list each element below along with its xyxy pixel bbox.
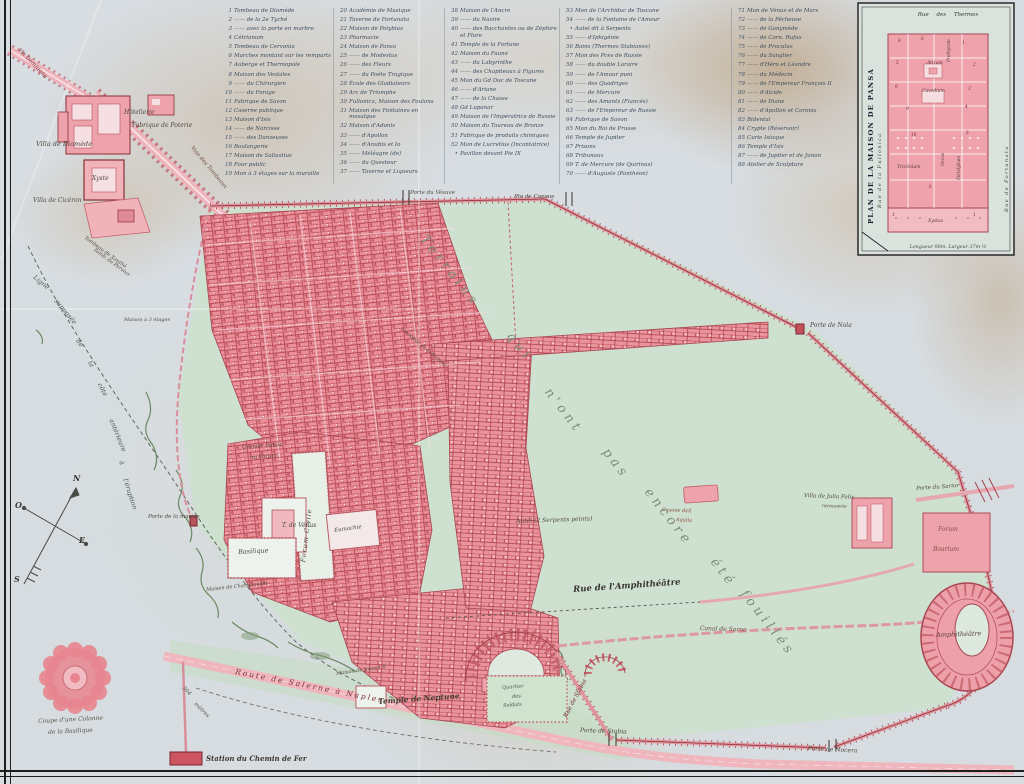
compass-west-label: O xyxy=(15,500,22,510)
legend-entry-label: —— du Navire xyxy=(460,17,561,23)
legend-entry: 29Arc de Triomphe xyxy=(338,90,446,96)
legend-entry: 24Maison de Pansa xyxy=(338,44,446,50)
legend-entry: 61—— de Mercure xyxy=(564,90,730,96)
legend-entry-number: • xyxy=(564,26,573,32)
legend-column: 71Mon de Vénus et de Mars72—— de la Pêch… xyxy=(736,8,858,171)
legend-entry: 22Maison de Polybius xyxy=(338,26,446,32)
legend-entry-number: 42 xyxy=(449,51,458,57)
legend-entry: 49Maison de l'Impératrice de Russie xyxy=(449,114,561,120)
legend-entry-label: —— d'Auguste (Panthéon) xyxy=(575,171,730,177)
legend-entry-label: Mon du Roi de Prusse xyxy=(575,126,730,132)
legend-entry: 83Bidental xyxy=(736,117,858,123)
legend-entry: 52Mon de Lucretius (Incantatrice) xyxy=(449,142,561,148)
legend-entry: 57Mon des Pces de Russie xyxy=(564,53,730,59)
legend-entry: 53Mon de l'Archiduc de Toscane xyxy=(564,8,730,14)
legend-entry: 50Maison du Taureau de Bronze xyxy=(449,123,561,129)
maison-pansa-inset xyxy=(858,3,1014,255)
legend-entry: 64Fabrique de Savon xyxy=(564,117,730,123)
map-label: Oecus xyxy=(941,153,945,166)
legend-entry-number: 43 xyxy=(449,60,458,66)
legend-entry: 20Académie de Musique xyxy=(338,8,446,14)
legend-entry-label: —— des Bacchantes ou de Zéphire et Flore xyxy=(460,26,561,39)
legend-entry-label: Boulangerie xyxy=(234,144,335,150)
legend-entry: 74—— de Corn. Rufus xyxy=(736,35,858,41)
legend-entry-label: —— du Sanglier xyxy=(747,53,858,59)
legend-entry: 14—— de Narcisse xyxy=(223,126,335,132)
legend-separator xyxy=(333,8,334,184)
legend-entry-label: Mon de Vénus et de Mars xyxy=(747,8,858,14)
legend-entry-number: 69 xyxy=(564,162,573,168)
legend-entry-number: 19 xyxy=(223,171,232,177)
map-border-bottom-inner xyxy=(0,776,1024,777)
legend-entry-number: • xyxy=(449,151,458,157)
legend-entry-number: 81 xyxy=(736,99,745,105)
legend-entry: 66Temple de Jupiter xyxy=(564,135,730,141)
legend-entry-number: 73 xyxy=(736,26,745,32)
compass-south-label: S xyxy=(14,574,20,584)
legend-entry-number: 76 xyxy=(736,53,745,59)
legend-entry-label: Académie de Musique xyxy=(349,8,446,14)
legend-entry-number: 17 xyxy=(223,153,232,159)
legend-entry-number: 58 xyxy=(564,62,573,68)
legend-entry-number: 22 xyxy=(338,26,347,32)
legend-entry: 36—— du Questeur xyxy=(338,160,446,166)
legend-entry-label: —— d'Apollon xyxy=(349,133,446,139)
legend-entry-label: Auberge et Thermopole xyxy=(234,62,335,68)
legend-entry-number: 39 xyxy=(449,17,458,23)
legend-entry-label: —— des Danseuses xyxy=(234,135,335,141)
legend-entry: 39—— du Navire xyxy=(449,17,561,23)
legend-entry-number: 7 xyxy=(223,62,232,68)
legend-entry: 45Mon du Gd Duc de Toscane xyxy=(449,78,561,84)
legend-entry-label: Maison du Taureau de Bronze xyxy=(460,123,561,129)
map-label: Basilique xyxy=(238,547,269,555)
map-label: Xyste xyxy=(92,176,109,182)
legend-entry: 12Caserne publique xyxy=(223,108,335,114)
villa-julia-felix-shape xyxy=(852,498,892,548)
legend-entry-number: 35 xyxy=(338,151,347,157)
legend-entry-number: 2 xyxy=(223,17,232,23)
legend-entry: 55—— d'Iphigénie xyxy=(564,35,730,41)
legend-entry-label: —— de la Fontaine de l'Amour xyxy=(575,17,730,23)
legend-entry-number: 55 xyxy=(564,35,573,41)
legend-entry-label: Fabrique de produits chimiques xyxy=(460,133,561,139)
legend-entry: 7Auberge et Thermopole xyxy=(223,62,335,68)
legend-entry-label: Prisons xyxy=(575,144,730,150)
legend-entry-number: 36 xyxy=(338,160,347,166)
legend-entry-number: 24 xyxy=(338,44,347,50)
legend-entry-number: 12 xyxy=(223,108,232,114)
legend-entry-number: 41 xyxy=(449,42,458,48)
legend-entry-label: —— du Labyrinthe xyxy=(460,60,561,66)
legend-entry-number: 71 xyxy=(736,8,745,14)
legend-entry-number: 83 xyxy=(736,117,745,123)
legend-entry-label: —— de Jupiter et de Junon xyxy=(747,153,858,159)
legend-entry-label: Maison d'Adonis xyxy=(349,123,446,129)
legend-entry-number: 4 xyxy=(223,35,232,41)
legend-entry-label: —— des Chapiteaux à Figures xyxy=(460,69,561,75)
legend-entry-number: 75 xyxy=(736,44,745,50)
legend-entry: 67Prisons xyxy=(564,144,730,150)
legend-entry: 31Maison des Fontaines en mosaïque xyxy=(338,108,446,121)
legend-entry-number: 20 xyxy=(338,8,347,14)
legend-entry-label: Curie Isiaque xyxy=(747,135,858,141)
legend-entry: 4Cétrianum xyxy=(223,35,335,41)
legend-entry-number: 23 xyxy=(338,35,347,41)
legend-entry-number: 61 xyxy=(564,90,573,96)
legend-entry-number: 10 xyxy=(223,90,232,96)
legend-entry-number: 60 xyxy=(564,81,573,87)
legend-entry: 8Maison des Vestales xyxy=(223,72,335,78)
map-label: Peristylium xyxy=(957,156,961,180)
legend-entry-number: 40 xyxy=(449,26,458,39)
legend-entry: 25—— de Modestus xyxy=(338,53,446,59)
map-label: Porte du Vésuve xyxy=(410,191,455,197)
legend-entry: 47—— de la Chasse xyxy=(449,96,561,102)
legend-entry-label: —— de Ganymède xyxy=(747,26,858,32)
legend-entry-label: Autel dit à Serpents xyxy=(575,26,730,32)
legend-entry: 78—— du Médecin xyxy=(736,72,858,78)
legend-entry-label: —— d'Ariane xyxy=(460,87,561,93)
map-label: 1 xyxy=(973,214,976,218)
legend-entry-label: Atelier de Sculpture xyxy=(747,162,858,168)
legend-entry-label: Cétrianum xyxy=(234,35,335,41)
legend-entry: 3—— avec la porte en marbre xyxy=(223,26,335,32)
legend-entry-number: 62 xyxy=(564,99,573,105)
legend-entry-label: —— des Amants (Fiancés) xyxy=(575,99,730,105)
legend-entry: 46—— d'Ariane xyxy=(449,87,561,93)
legend-entry-label: —— Méléagre (de) xyxy=(349,151,446,157)
legend-entry-label: Fullonica, Maison des Foulons xyxy=(349,99,446,105)
map-label: Villa de Cicéron xyxy=(33,198,82,204)
legend-entry-number: 15 xyxy=(223,135,232,141)
legend-entry-label: Taverne de Fortunata xyxy=(349,17,446,23)
legend-entry: 21Taverne de Fortunata xyxy=(338,17,446,23)
legend-entry: 60—— des Quadriges xyxy=(564,81,730,87)
legend-entry: 30Fullonica, Maison des Foulons xyxy=(338,99,446,105)
legend-entry-label: Bidental xyxy=(747,117,858,123)
casone-aquila-shape xyxy=(683,485,718,503)
legend-entry: 79—— de l'Empereur François II xyxy=(736,81,858,87)
legend-entry: 43—— du Labyrinthe xyxy=(449,60,561,66)
legend-entry-number: 51 xyxy=(449,133,458,139)
legend-entry-label: Temple de la Fortune xyxy=(460,42,561,48)
legend-column: 1Tombeau de Diomède2—— de la 2e Tyché3——… xyxy=(223,8,335,180)
legend-column: 20Académie de Musique21Taverne de Fortun… xyxy=(338,8,446,178)
legend-entry-label: Fabrique de Savon xyxy=(234,99,335,105)
legend-entry-label: —— de Mercure xyxy=(575,90,730,96)
map-label: Porte de Nola xyxy=(810,323,852,329)
legend-entry-label: —— de Narcisse xyxy=(234,126,335,132)
legend-entry: 77—— d'Héro et Léandre xyxy=(736,62,858,68)
legend-entry-label: Tombeau de Diomède xyxy=(234,8,335,14)
legend-entry: •Autel dit à Serpents xyxy=(564,26,730,32)
legend-entry: 5Tombeau de Cervonia xyxy=(223,44,335,50)
legend-entry-number: 68 xyxy=(564,153,573,159)
legend-entry-number: 46 xyxy=(449,87,458,93)
legend-entry: 37—— Taverne et Liqueurs xyxy=(338,169,446,175)
legend-entry-number: 50 xyxy=(449,123,458,129)
legend-separator xyxy=(731,8,732,184)
legend-entry-number: 44 xyxy=(449,69,458,75)
legend-entry-number: 33 xyxy=(338,133,347,139)
legend-entry-label: Maison de l'Ancre xyxy=(460,8,561,14)
compass-rose xyxy=(22,488,87,584)
legend-entry-label: —— d'Alcide xyxy=(747,90,858,96)
legend-entry: 18Four public xyxy=(223,162,335,168)
legend-entry: 44—— des Chapiteaux à Figures xyxy=(449,69,561,75)
legend-entry: 65Mon du Roi de Prusse xyxy=(564,126,730,132)
legend-entry-label: Tribunaux xyxy=(575,153,730,159)
legend-entry-label: Maison du Faune xyxy=(460,51,561,57)
legend-entry: 68Tribunaux xyxy=(564,153,730,159)
legend-entry-number: 16 xyxy=(223,144,232,150)
legend-entry-number: 27 xyxy=(338,72,347,78)
legend-entry-number: 56 xyxy=(564,44,573,50)
legend-entry-number: 65 xyxy=(564,126,573,132)
legend-column: 53Mon de l'Archiduc de Toscane54—— de la… xyxy=(564,8,730,180)
legend-entry-number: 38 xyxy=(449,8,458,14)
map-label: Triclinium xyxy=(897,166,921,171)
legend-entry: 48Gd Lupanar xyxy=(449,105,561,111)
legend-entry-label: Bains (Thermes Stabianes) xyxy=(575,44,730,50)
legend-entry-number: 54 xyxy=(564,17,573,23)
inset-street-thermes: Rue des Thermes xyxy=(897,12,999,18)
villa-ciceron-block xyxy=(118,210,134,222)
map-label: Atrium xyxy=(927,62,943,67)
legend-entry: 33—— d'Apollon xyxy=(338,133,446,139)
legend-entry-label: —— de Corn. Rufus xyxy=(747,35,858,41)
map-label: 5 xyxy=(896,62,899,66)
legend-entry-number: 64 xyxy=(564,117,573,123)
legend-entry-number: 21 xyxy=(338,17,347,23)
legend-entry-number: 84 xyxy=(736,126,745,132)
legend-entry-label: Maison de Pansa xyxy=(349,44,446,50)
legend-entry-number: 70 xyxy=(564,171,573,177)
map-label: 10 xyxy=(911,134,916,138)
legend-entry-label: Marches montant sur les remparts xyxy=(234,53,335,59)
map-border-left-outer xyxy=(4,0,6,784)
legend-entry-label: —— de Modestus xyxy=(349,53,446,59)
legend-entry-number: 77 xyxy=(736,62,745,68)
legend-entry: 42Maison du Faune xyxy=(449,51,561,57)
compass-east-label: E xyxy=(79,535,85,545)
map-label: h xyxy=(929,186,932,190)
railway-line xyxy=(183,662,186,752)
map-label: 9 xyxy=(895,86,898,90)
legend-entry-label: —— des Fleurs xyxy=(349,62,446,68)
legend-entry: 71Mon de Vénus et de Mars xyxy=(736,8,858,14)
inset-title: PLAN DE LA MAISON DE PANSA xyxy=(867,68,875,224)
legend-entry: 38Maison de l'Ancre xyxy=(449,8,561,14)
legend-entry-number: 3 xyxy=(223,26,232,32)
map-label: 4 xyxy=(965,106,968,110)
map-label: recouverte xyxy=(822,505,847,510)
legend-entry-label: Arc de Triomphe xyxy=(349,90,446,96)
legend-entry-number: 53 xyxy=(564,8,573,14)
map-label: Forum xyxy=(938,527,958,533)
legend-entry-label: Caserne publique xyxy=(234,108,335,114)
map-label: Maison à 3 étages xyxy=(124,318,170,323)
legend-entry-number: 79 xyxy=(736,81,745,87)
legend-entry-number: 80 xyxy=(736,90,745,96)
legend-entry-number: 86 xyxy=(736,144,745,150)
legend-entry-number: 49 xyxy=(449,114,458,120)
legend-entry-number: 34 xyxy=(338,142,347,148)
legend-entry-label: Four public xyxy=(234,162,335,168)
legend-entry-number: 18 xyxy=(223,162,232,168)
legend-entry-number: 9 xyxy=(223,81,232,87)
legend-entry-label: Maison des Vestales xyxy=(234,72,335,78)
legend-entry-label: T. de Mercure (de Quirinus) xyxy=(575,162,730,168)
map-label: 6 xyxy=(921,38,924,42)
legend-entry: 81—— de Diane xyxy=(736,99,858,105)
legend-entry: 27—— du Poète Tragique xyxy=(338,72,446,78)
legend-entry-label: Mon du Gd Duc de Toscane xyxy=(460,78,561,84)
map-label: 5 xyxy=(966,132,969,136)
legend-entry-number: 78 xyxy=(736,72,745,78)
legend-entry: 73—— de Ganymède xyxy=(736,26,858,32)
legend-entry: 70—— d'Auguste (Panthéon) xyxy=(564,171,730,177)
legend-entry-label: Mon à 3 étages sur la muraille xyxy=(234,171,335,177)
map-label: 3 xyxy=(968,88,971,92)
map-label: Cavedium xyxy=(922,90,945,95)
legend-entry-number: 74 xyxy=(736,35,745,41)
legend-entry-number: 87 xyxy=(736,153,745,159)
legend-entry: 72—— de la Pêcheuse xyxy=(736,17,858,23)
legend-entry-label: Mon de Lucretius (Incantatrice) xyxy=(460,142,561,148)
legend-entry-number: 32 xyxy=(338,123,347,129)
legend-entry-label: Pavillon devant Pie IX xyxy=(460,151,561,157)
legend-entry: 59—— de l'Amour puni xyxy=(564,72,730,78)
legend-entry: 69T. de Mercure (de Quirinus) xyxy=(564,162,730,168)
legend-entry-label: —— du Médecin xyxy=(747,72,858,78)
legend-entry-number: 28 xyxy=(338,81,347,87)
legend-entry: 2—— de la 2e Tyché xyxy=(223,17,335,23)
legend-entry-number: 59 xyxy=(564,72,573,78)
basilique-shape xyxy=(228,538,296,578)
legend-entry-number: 31 xyxy=(338,108,347,121)
legend-entry-number: 14 xyxy=(223,126,232,132)
legend-entry: 28École des Gladiateurs xyxy=(338,81,446,87)
legend-entry: 26—— des Fleurs xyxy=(338,62,446,68)
legend-entry-number: 45 xyxy=(449,78,458,84)
legend-entry-label: Mon de l'Archiduc de Toscane xyxy=(575,8,730,14)
map-border-left-inner xyxy=(10,0,11,784)
villa-ciceron-shape xyxy=(84,198,150,238)
legend-entry: 34—— d'Anubis et Io xyxy=(338,142,446,148)
legend-entry-label: —— d'Héro et Léandre xyxy=(747,62,858,68)
inset-dimensions-caption: Longueur 98m. Largeur 37m ½ xyxy=(886,245,1010,250)
legend-entry-number: 26 xyxy=(338,62,347,68)
legend-entry: 75—— de Proculus xyxy=(736,44,858,50)
legend-entry: 51Fabrique de produits chimiques xyxy=(449,133,561,139)
legend-entry-label: —— du Poète Tragique xyxy=(349,72,446,78)
map-border-bottom-outer xyxy=(0,770,1024,772)
map-label: Hôtellerie xyxy=(124,110,155,116)
legend-entry-label: —— de la Pêcheuse xyxy=(747,17,858,23)
legend-entry-number: 48 xyxy=(449,105,458,111)
map-label: Boarium xyxy=(933,547,959,553)
legend-entry: 40—— des Bacchantes ou de Zéphire et Flo… xyxy=(449,26,561,39)
legend-entry-label: —— de l'Empereur de Russie xyxy=(575,108,730,114)
legend-entry-label: Temple d'Isis xyxy=(747,144,858,150)
legend-entry: 84Crypte (Réservoir) xyxy=(736,126,858,132)
legend-entry-label: Temple de Jupiter xyxy=(575,135,730,141)
map-label: 8 xyxy=(898,40,901,44)
legend-entry-label: —— de la 2e Tyché xyxy=(234,17,335,23)
legend-entry: 35—— Méléagre (de) xyxy=(338,151,446,157)
legend-entry-label: —— d'Iphigénie xyxy=(575,35,730,41)
legend-entry: 11Fabrique de Savon xyxy=(223,99,335,105)
map-label: Villa de Diomède xyxy=(36,141,92,148)
compass-north-label: N xyxy=(73,473,80,483)
legend-entry-label: —— avec la porte en marbre xyxy=(234,26,335,32)
legend-entry: 19Mon à 3 étages sur la muraille xyxy=(223,171,335,177)
legend-entry-label: Maison de Polybius xyxy=(349,26,446,32)
map-label: 2 xyxy=(973,64,976,68)
forum-boarium-shape xyxy=(923,513,990,572)
legend-entry: 54—— de la Fontaine de l'Amour xyxy=(564,17,730,23)
legend-entry-number: 11 xyxy=(223,99,232,105)
legend-entry-label: École des Gladiateurs xyxy=(349,81,446,87)
legend-entry-label: Maison des Fontaines en mosaïque xyxy=(349,108,446,121)
legend-entry-number: 13 xyxy=(223,117,232,123)
legend-entry-label: Maison de Sallustius xyxy=(234,153,335,159)
legend-entry-label: Gd Lupanar xyxy=(460,105,561,111)
legend-entry-label: Maison de l'Impératrice de Russie xyxy=(460,114,561,120)
legend-entry: 16Boulangerie xyxy=(223,144,335,150)
legend-entry-label: Mon des Pces de Russie xyxy=(575,53,730,59)
legend-entry: 41Temple de la Fortune xyxy=(449,42,561,48)
legend-entry-number: 72 xyxy=(736,17,745,23)
legend-entry-label: —— du double Laraire xyxy=(575,62,730,68)
legend-entry-label: Fabrique de Savon xyxy=(575,117,730,123)
legend-entry-label: —— de l'Empereur François II xyxy=(747,81,858,87)
legend-entry: 56Bains (Thermes Stabianes) xyxy=(564,44,730,50)
legend-entry: 58—— du double Laraire xyxy=(564,62,730,68)
legend-entry: 82—— d'Apollon et Coronis xyxy=(736,108,858,114)
legend-entry: 87—— de Jupiter et de Junon xyxy=(736,153,858,159)
legend-entry-number: 82 xyxy=(736,108,745,114)
legend-entry-number: 52 xyxy=(449,142,458,148)
legend-entry-label: —— d'Anubis et Io xyxy=(349,142,446,148)
legend-entry: 88Atelier de Sculpture xyxy=(736,162,858,168)
legend-entry-number: 88 xyxy=(736,162,745,168)
legend-entry-label: Tombeau de Cervonia xyxy=(234,44,335,50)
legend-entry-number: 30 xyxy=(338,99,347,105)
legend-entry-label: —— du Questeur xyxy=(349,160,446,166)
map-label: des xyxy=(512,694,521,700)
legend-entry-label: —— de la Chasse xyxy=(460,96,561,102)
legend-entry: 9—— du Chirurgien xyxy=(223,81,335,87)
legend-entry-number: 67 xyxy=(564,144,573,150)
legend-entry-number: 8 xyxy=(223,72,232,78)
antique-pompeii-map: 1Tombeau de Diomède2—— de la 2e Tyché3——… xyxy=(0,0,1024,784)
inset-street-fortunata: Rue de Fortunata xyxy=(1004,145,1010,212)
legend-entry: 6Marches montant sur les remparts xyxy=(223,53,335,59)
legend-entry: 85Curie Isiaque xyxy=(736,135,858,141)
legend-entry: 13Maison d'Isis xyxy=(223,117,335,123)
map-label: Amphithéâtre xyxy=(936,630,982,638)
map-label: Xystus xyxy=(928,220,943,225)
legend-entry: 86Temple d'Isis xyxy=(736,144,858,150)
legend-column: 38Maison de l'Ancre39—— du Navire40—— de… xyxy=(449,8,561,160)
legend-entry: 62—— des Amants (Fiancés) xyxy=(564,99,730,105)
legend-entry-number: 85 xyxy=(736,135,745,141)
legend-entry-number: 66 xyxy=(564,135,573,141)
legend-entry-label: Crypte (Réservoir) xyxy=(747,126,858,132)
